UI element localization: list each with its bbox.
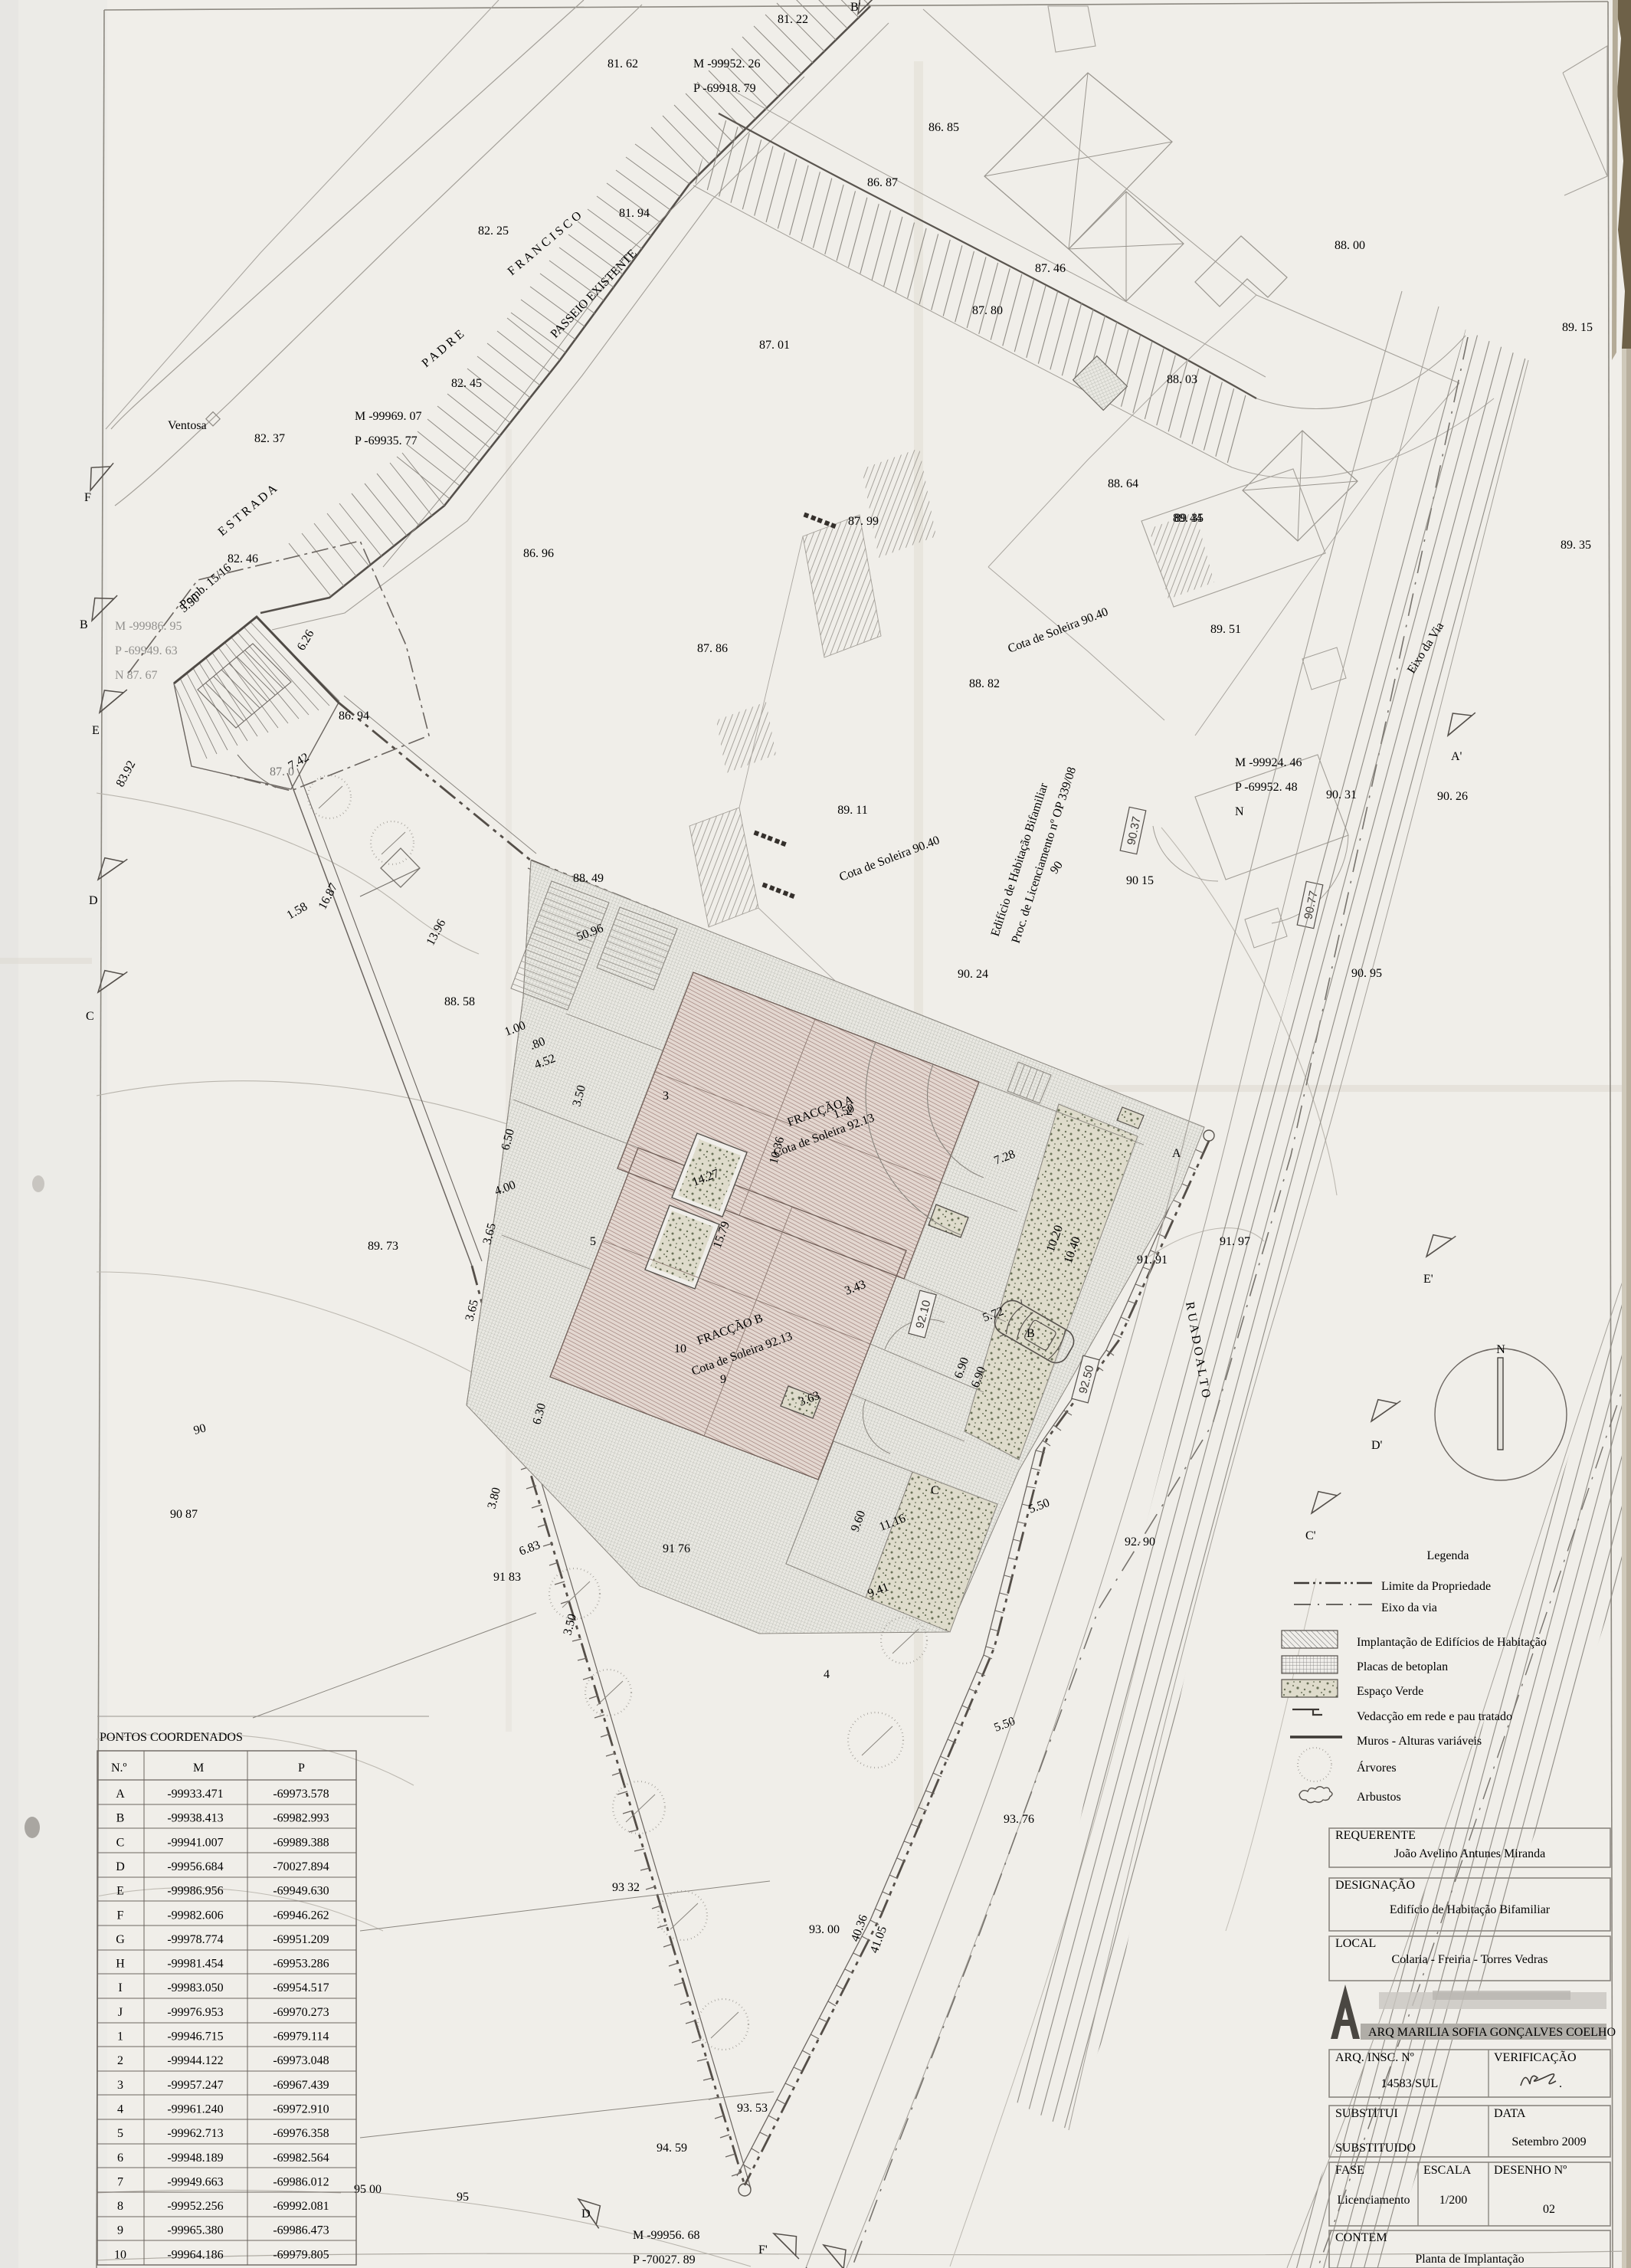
svg-text:91 83: 91 83 — [493, 1571, 521, 1584]
svg-text:E: E — [92, 724, 100, 737]
svg-text:82. 25: 82. 25 — [478, 225, 509, 238]
svg-text:88. 58: 88. 58 — [444, 995, 475, 1008]
svg-text:-99986.956: -99986.956 — [167, 1885, 223, 1898]
svg-text:88. 00: 88. 00 — [1335, 239, 1365, 252]
svg-text:6: 6 — [117, 2152, 123, 2165]
svg-text:M -99952. 26: M -99952. 26 — [693, 57, 761, 70]
svg-text:88. 82: 88. 82 — [969, 677, 1000, 690]
svg-text:J: J — [118, 2006, 123, 2019]
svg-text:90 87: 90 87 — [170, 1508, 198, 1521]
svg-text:-99964.186: -99964.186 — [167, 2248, 223, 2261]
svg-text:N.º: N.º — [111, 1762, 127, 1775]
svg-text:-99957.247: -99957.247 — [167, 2079, 223, 2092]
svg-text:90. 95: 90. 95 — [1351, 967, 1382, 980]
svg-text:DESENHO Nº: DESENHO Nº — [1494, 2164, 1567, 2177]
svg-text:-99978.774: -99978.774 — [167, 1933, 223, 1946]
svg-text:-99982.606: -99982.606 — [167, 1909, 223, 1922]
svg-text:SUBSTITUI: SUBSTITUI — [1335, 2107, 1398, 2120]
svg-text:-99941.007: -99941.007 — [167, 1836, 223, 1849]
svg-text:-69982.993: -69982.993 — [273, 1812, 329, 1825]
svg-text:91. 91: 91. 91 — [1137, 1254, 1168, 1267]
svg-text:-99961.240: -99961.240 — [167, 2102, 223, 2116]
svg-text:86. 94: 86. 94 — [339, 710, 369, 723]
svg-text:9: 9 — [117, 2224, 123, 2237]
svg-text:90. 31: 90. 31 — [1326, 788, 1357, 801]
svg-text:3: 3 — [117, 2079, 123, 2092]
svg-text:-99938.413: -99938.413 — [167, 1812, 223, 1825]
svg-text:E': E' — [1423, 1273, 1433, 1286]
svg-text:Limite da Propriedade: Limite da Propriedade — [1381, 1580, 1491, 1593]
svg-text:4: 4 — [117, 2102, 123, 2116]
svg-text:14583/SUL: 14583/SUL — [1381, 2077, 1439, 2090]
svg-text:P: P — [298, 1762, 305, 1775]
svg-text:90 15: 90 15 — [1126, 874, 1154, 887]
svg-text:93. 76: 93. 76 — [1004, 1813, 1034, 1826]
svg-text:C: C — [116, 1836, 125, 1849]
svg-text:-70027.894: -70027.894 — [273, 1860, 329, 1873]
svg-text:N: N — [1496, 1343, 1505, 1356]
svg-text:5: 5 — [117, 2127, 123, 2140]
svg-text:PONTOS COORDENADOS: PONTOS COORDENADOS — [100, 1731, 243, 1744]
svg-text:I: I — [118, 1981, 122, 1994]
svg-text:-99965.380: -99965.380 — [167, 2224, 223, 2237]
svg-text:1: 1 — [117, 2030, 123, 2043]
svg-text:95: 95 — [457, 2191, 469, 2204]
svg-text:P -69935. 77: P -69935. 77 — [355, 434, 418, 447]
svg-text:-69979.114: -69979.114 — [273, 2030, 329, 2043]
svg-text:-69973.048: -69973.048 — [273, 2054, 329, 2067]
svg-text:Implantação de Edifícios de Ha: Implantação de Edifícios de Habitação — [1357, 1636, 1547, 1649]
svg-text:2: 2 — [847, 1105, 853, 1118]
svg-text:M: M — [193, 1762, 204, 1775]
svg-text:92. 90: 92. 90 — [1125, 1535, 1155, 1549]
svg-text:M -99924. 46: M -99924. 46 — [1235, 756, 1302, 769]
svg-text:-99952.256: -99952.256 — [167, 2200, 223, 2213]
svg-text:SUBSTITUIDO: SUBSTITUIDO — [1335, 2142, 1416, 2155]
svg-text:89. 51: 89. 51 — [1210, 623, 1241, 636]
svg-text:Colaria - Freiria - Torres Ved: Colaria - Freiria - Torres Vedras — [1392, 1953, 1548, 1966]
svg-text:-99962.713: -99962.713 — [167, 2127, 223, 2140]
svg-text:4: 4 — [824, 1668, 830, 1681]
svg-text:Planta de Implantação: Planta de Implantação — [1415, 2253, 1524, 2266]
svg-text:E: E — [116, 1885, 124, 1898]
svg-text:N: N — [1235, 805, 1244, 818]
svg-text:3: 3 — [663, 1090, 669, 1103]
svg-text:Vedacção em rede e pau tratado: Vedacção em rede e pau tratado — [1357, 1710, 1512, 1723]
svg-text:8: 8 — [117, 2200, 123, 2213]
svg-text:G: G — [116, 1933, 125, 1946]
svg-text:90. 24: 90. 24 — [958, 968, 988, 981]
svg-text:-69967.439: -69967.439 — [273, 2079, 329, 2092]
svg-text:-99981.454: -99981.454 — [167, 1958, 223, 1971]
svg-text:Legenda: Legenda — [1426, 1549, 1469, 1562]
svg-text:B: B — [116, 1812, 125, 1825]
svg-text:N 87. 67: N 87. 67 — [115, 669, 158, 682]
svg-text:-69954.517: -69954.517 — [273, 1981, 329, 1994]
svg-text:-69989.388: -69989.388 — [273, 1836, 329, 1849]
svg-text:-69946.262: -69946.262 — [273, 1909, 329, 1922]
svg-text:Ventosa: Ventosa — [168, 419, 207, 432]
svg-text:Setembro 2009: Setembro 2009 — [1511, 2135, 1586, 2148]
svg-text:-69973.578: -69973.578 — [273, 1788, 329, 1801]
svg-text:90. 26: 90. 26 — [1437, 790, 1468, 803]
svg-text:F: F — [117, 1909, 124, 1922]
svg-text:Muros - Alturas variáveis: Muros - Alturas variáveis — [1357, 1735, 1482, 1748]
svg-text:João Avelino Antunes Miranda: João Avelino Antunes Miranda — [1394, 1847, 1545, 1860]
svg-text:7: 7 — [117, 2175, 123, 2188]
svg-text:82. 46: 82. 46 — [228, 552, 258, 565]
svg-text:DESIGNAÇÃO: DESIGNAÇÃO — [1335, 1878, 1415, 1892]
svg-text:82. 45: 82. 45 — [451, 377, 482, 390]
svg-text:D: D — [581, 2207, 591, 2220]
svg-text:-69986.012: -69986.012 — [273, 2175, 329, 2188]
svg-text:-69953.286: -69953.286 — [273, 1958, 329, 1971]
svg-text:88. 49: 88. 49 — [573, 872, 604, 885]
svg-text:C: C — [86, 1010, 94, 1023]
svg-text:-99944.122: -99944.122 — [167, 2054, 223, 2067]
svg-text:91 76: 91 76 — [663, 1542, 690, 1555]
svg-text:P -69952. 48: P -69952. 48 — [1235, 781, 1298, 794]
svg-text:M -99969. 07: M -99969. 07 — [355, 410, 422, 423]
svg-text:93. 00: 93. 00 — [809, 1923, 840, 1936]
svg-text:87. 86: 87. 86 — [697, 642, 728, 655]
svg-text:87. 0: 87. 0 — [270, 765, 294, 778]
svg-text:1/200: 1/200 — [1439, 2194, 1467, 2207]
svg-text:Espaço Verde: Espaço Verde — [1357, 1685, 1423, 1698]
svg-text:M -99956. 68: M -99956. 68 — [633, 2229, 700, 2242]
svg-text:88. 64: 88. 64 — [1108, 477, 1138, 490]
svg-text:VERIFICAÇÃO: VERIFICAÇÃO — [1494, 2050, 1577, 2064]
svg-text:B: B — [80, 618, 88, 631]
svg-text:C': C' — [1305, 1529, 1316, 1542]
svg-text:89. 11: 89. 11 — [837, 804, 867, 817]
svg-text:ESCALA: ESCALA — [1423, 2164, 1472, 2177]
svg-text:-99946.715: -99946.715 — [167, 2030, 223, 2043]
svg-text:81. 62: 81. 62 — [608, 57, 638, 70]
svg-text:87. 01: 87. 01 — [759, 339, 790, 352]
svg-text:-99976.953: -99976.953 — [167, 2006, 223, 2019]
svg-text:89. 35: 89. 35 — [1561, 539, 1591, 552]
svg-text:93 32: 93 32 — [612, 1881, 640, 1894]
svg-text:-69979.805: -69979.805 — [273, 2248, 329, 2261]
svg-text:P -69918. 79: P -69918. 79 — [693, 82, 756, 95]
svg-text:-69976.358: -69976.358 — [273, 2127, 329, 2140]
svg-text:LOCAL: LOCAL — [1335, 1937, 1376, 1950]
svg-text:B: B — [1027, 1327, 1035, 1340]
svg-text:81. 94: 81. 94 — [619, 207, 650, 220]
svg-text:-99948.189: -99948.189 — [167, 2152, 223, 2165]
svg-text:87. 46: 87. 46 — [1035, 262, 1066, 275]
svg-text:88. 03: 88. 03 — [1167, 373, 1197, 386]
svg-text:F: F — [84, 491, 91, 504]
svg-text:86. 96: 86. 96 — [523, 547, 554, 560]
svg-text:Edifício de Habitação Bifamili: Edifício de Habitação Bifamiliar — [1390, 1903, 1551, 1916]
svg-text:D': D' — [1371, 1439, 1383, 1452]
svg-text:Eixo da via: Eixo da via — [1381, 1601, 1437, 1614]
svg-text:02: 02 — [1543, 2203, 1555, 2216]
svg-text:REQUERENTE: REQUERENTE — [1335, 1829, 1416, 1842]
svg-text:A: A — [116, 1788, 125, 1801]
svg-text:F': F' — [758, 2243, 768, 2257]
svg-text:-69951.209: -69951.209 — [273, 1933, 329, 1946]
svg-text:-69992.081: -69992.081 — [273, 2200, 329, 2213]
svg-text:10: 10 — [114, 2248, 126, 2261]
svg-text:-99983.050: -99983.050 — [167, 1981, 223, 1994]
svg-text:94. 59: 94. 59 — [657, 2142, 687, 2155]
svg-text:FASE: FASE — [1335, 2164, 1364, 2177]
svg-text:DATA: DATA — [1494, 2107, 1526, 2120]
svg-text:-99933.471: -99933.471 — [167, 1788, 223, 1801]
svg-text:81. 22: 81. 22 — [778, 13, 808, 26]
svg-text:A': A' — [1451, 750, 1462, 763]
svg-text:89. 73: 89. 73 — [368, 1240, 398, 1253]
svg-text:-99949.663: -99949.663 — [167, 2175, 223, 2188]
svg-text:D: D — [116, 1860, 125, 1873]
svg-text:ARQ. INSC. Nº: ARQ. INSC. Nº — [1335, 2051, 1414, 2064]
svg-text:-69986.473: -69986.473 — [273, 2224, 329, 2237]
svg-text:H: H — [116, 1958, 125, 1971]
svg-text:87. 99: 87. 99 — [848, 515, 879, 528]
svg-text:B': B' — [850, 1, 861, 14]
svg-text:D: D — [89, 894, 98, 907]
svg-text:Placas de betoplan: Placas de betoplan — [1357, 1660, 1448, 1673]
svg-text:-69949.630: -69949.630 — [273, 1885, 329, 1898]
svg-text:86. 85: 86. 85 — [928, 121, 959, 134]
svg-text:M -99986. 95: M -99986. 95 — [115, 620, 182, 633]
svg-text:95 00: 95 00 — [354, 2183, 382, 2196]
svg-text:86. 87: 86. 87 — [867, 176, 898, 189]
svg-text:Arbustos: Arbustos — [1357, 1791, 1401, 1804]
svg-text:-99956.684: -99956.684 — [167, 1860, 223, 1873]
svg-text:87. 80: 87. 80 — [972, 304, 1003, 317]
svg-text:93. 53: 93. 53 — [737, 2102, 768, 2115]
svg-text:5: 5 — [590, 1235, 596, 1248]
svg-text:10: 10 — [674, 1342, 686, 1355]
svg-text:9: 9 — [720, 1373, 726, 1386]
svg-text:P -69949. 63: P -69949. 63 — [115, 644, 178, 657]
svg-text:P -70027. 89: P -70027. 89 — [633, 2253, 696, 2266]
svg-text:82. 37: 82. 37 — [254, 432, 285, 445]
svg-text:ARQ MARILIA SOFIA GONÇALVES CO: ARQ MARILIA SOFIA GONÇALVES COELHO — [1368, 2026, 1616, 2039]
svg-text:.: . — [1559, 2077, 1562, 2090]
svg-text:-69982.564: -69982.564 — [273, 2152, 329, 2165]
svg-text:-69970.273: -69970.273 — [273, 2006, 329, 2019]
svg-text:-69972.910: -69972.910 — [273, 2102, 329, 2116]
svg-text:Licenciamento: Licenciamento — [1337, 2194, 1410, 2207]
svg-text:89. 15: 89. 15 — [1562, 321, 1593, 334]
svg-text:89 44: 89 44 — [1174, 512, 1202, 525]
svg-text:CONTEM: CONTEM — [1335, 2231, 1387, 2244]
svg-text:C: C — [931, 1484, 939, 1497]
svg-text:Árvores: Árvores — [1357, 1760, 1397, 1775]
svg-text:91. 97: 91. 97 — [1220, 1235, 1250, 1248]
svg-text:2: 2 — [117, 2054, 123, 2067]
